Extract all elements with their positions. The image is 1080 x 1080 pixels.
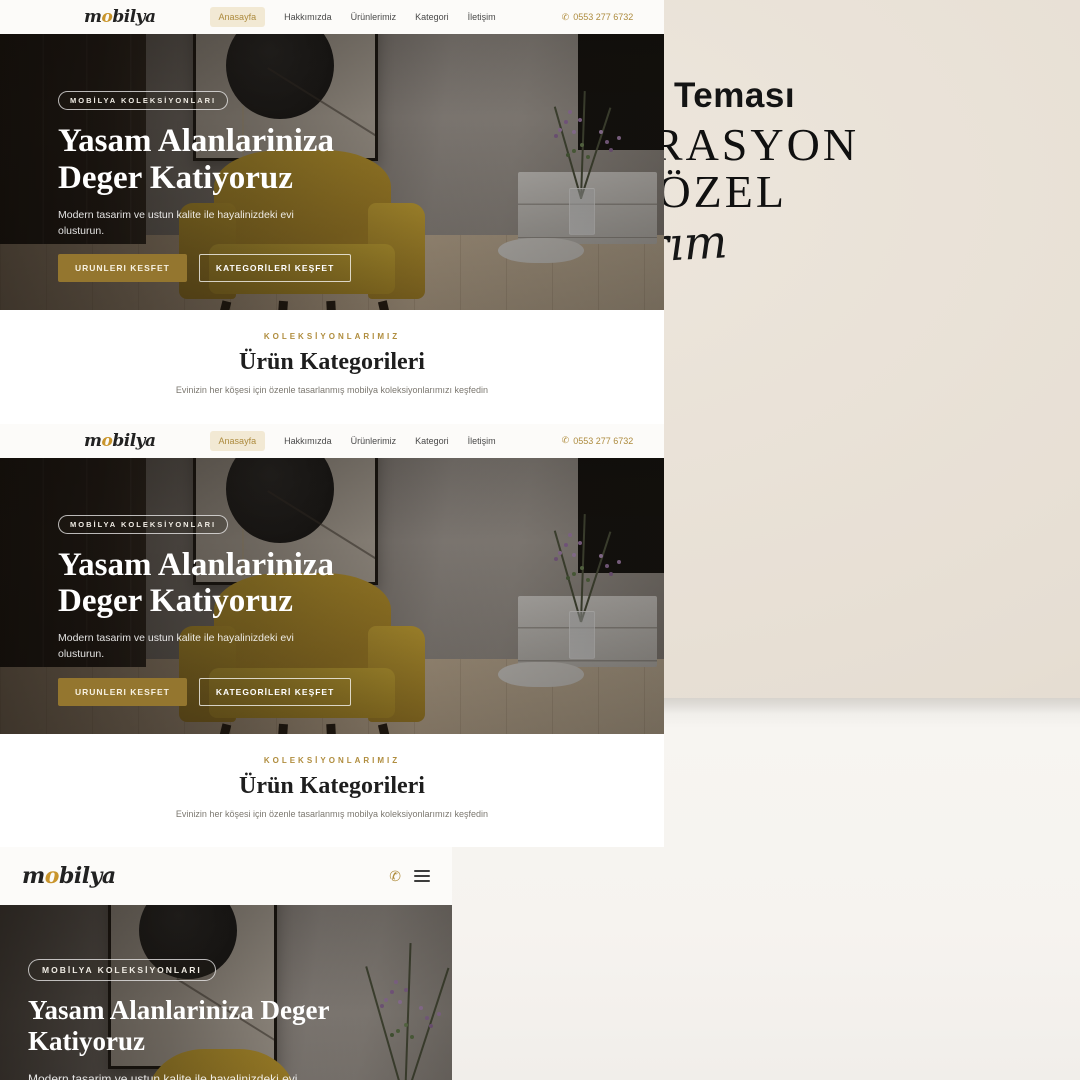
hero-buttons: URUNLERI KESFET KATEGORİLERİ KEŞFET bbox=[58, 678, 378, 706]
hero-section: MOBİLYA KOLEKSİYONLARI Yasam Alanlariniz… bbox=[0, 34, 664, 310]
collections-title: Ürün Kategorileri bbox=[0, 349, 664, 376]
site-logo[interactable]: mobilya bbox=[84, 431, 156, 451]
nav-item-anasayfa[interactable]: Anasayfa bbox=[210, 7, 266, 27]
hero-badge: MOBİLYA KOLEKSİYONLARI bbox=[58, 91, 228, 110]
collections-section: KOLEKSİYONLARIMIZ Ürün Kategorileri Evin… bbox=[0, 310, 664, 424]
hero-subtitle: Modern tasarim ve ustun kalite ile hayal… bbox=[58, 631, 328, 663]
website-tablet: mobilya ✆ bbox=[0, 847, 452, 1080]
site-navbar: mobilya Anasayfa Hakkımızda Ürünlerimiz … bbox=[0, 0, 664, 34]
hero-content: MOBİLYA KOLEKSİYONLARI Yasam Alanlariniz… bbox=[58, 90, 378, 282]
logo-part: m bbox=[22, 863, 45, 889]
explore-products-button[interactable]: URUNLERI KESFET bbox=[58, 678, 187, 706]
hero-subtitle: Modern tasarim ve ustun kalite ile hayal… bbox=[28, 1070, 328, 1080]
logo-part: bilya bbox=[59, 863, 116, 889]
logo-o-accent: o bbox=[102, 7, 113, 27]
hero-content: MOBİLYA KOLEKSİYONLARI Yasam Alanlariniz… bbox=[28, 959, 358, 1080]
hamburger-icon[interactable] bbox=[414, 870, 430, 882]
header-icons: ✆ bbox=[389, 868, 430, 885]
collections-section: KOLEKSİYONLARIMIZ Ürün Kategorileri Evin… bbox=[0, 734, 664, 848]
nav-item-hakkimizda[interactable]: Hakkımızda bbox=[284, 436, 332, 446]
nav-item-kategori[interactable]: Kategori bbox=[415, 12, 449, 22]
logo-o-accent: o bbox=[45, 863, 59, 889]
explore-categories-button[interactable]: KATEGORİLERİ KEŞFET bbox=[199, 678, 352, 706]
collections-eyebrow: KOLEKSİYONLARIMIZ bbox=[0, 756, 664, 765]
collections-title: Ürün Kategorileri bbox=[0, 773, 664, 800]
nav-item-urunlerimiz[interactable]: Ürünlerimiz bbox=[351, 12, 397, 22]
poster-canvas: ESC Mobilya Web Site Teması MOBILYA & DE… bbox=[0, 0, 1080, 1080]
phone-icon: ✆ bbox=[562, 435, 570, 446]
nav-item-urunlerimiz[interactable]: Ürünlerimiz bbox=[351, 436, 397, 446]
nav-item-iletisim[interactable]: İletişim bbox=[468, 436, 496, 446]
collections-eyebrow: KOLEKSİYONLARIMIZ bbox=[0, 332, 664, 341]
hero-title: Yasam Alanlariniza Deger Katiyoruz bbox=[58, 123, 378, 197]
logo-part: m bbox=[84, 431, 102, 451]
collections-subtitle: Evinizin her köşesi için özenle tasarlan… bbox=[167, 384, 497, 398]
phone-number: 0553 277 6732 bbox=[573, 436, 633, 446]
explore-categories-button[interactable]: KATEGORİLERİ KEŞFET bbox=[199, 254, 352, 282]
hero-buttons: URUNLERI KESFET KATEGORİLERİ KEŞFET bbox=[58, 254, 378, 282]
logo-part: bilya bbox=[112, 7, 155, 27]
hero-title: Yasam Alanlariniza Deger Katiyoruz bbox=[58, 547, 378, 621]
hero-subtitle: Modern tasarim ve ustun kalite ile hayal… bbox=[58, 208, 328, 240]
nav-item-kategori[interactable]: Kategori bbox=[415, 436, 449, 446]
phone-number: 0553 277 6732 bbox=[573, 12, 633, 22]
logo-part: m bbox=[84, 7, 102, 27]
site-logo[interactable]: mobilya bbox=[22, 863, 116, 889]
nav-item-anasayfa[interactable]: Anasayfa bbox=[210, 431, 266, 451]
phone-link[interactable]: ✆ 0553 277 6732 bbox=[562, 12, 634, 23]
nav-item-hakkimizda[interactable]: Hakkımızda bbox=[284, 12, 332, 22]
logo-o-accent: o bbox=[102, 431, 113, 451]
hero-title: Yasam Alanlariniza Deger Katiyoruz bbox=[28, 995, 358, 1058]
site-logo[interactable]: mobilya bbox=[84, 7, 156, 27]
nav-links: Anasayfa Hakkımızda Ürünlerimiz Kategori… bbox=[210, 7, 496, 27]
website-desktop: mobilya Anasayfa Hakkımızda Ürünlerimiz … bbox=[0, 424, 664, 848]
hero-section: MOBİLYA KOLEKSİYONLARI Yasam Alanlariniz… bbox=[0, 905, 452, 1080]
phone-link[interactable]: ✆ 0553 277 6732 bbox=[562, 435, 634, 446]
hero-badge: MOBİLYA KOLEKSİYONLARI bbox=[28, 959, 216, 981]
hero-content: MOBİLYA KOLEKSİYONLARI Yasam Alanlariniz… bbox=[58, 514, 378, 706]
explore-products-button[interactable]: URUNLERI KESFET bbox=[58, 254, 187, 282]
logo-part: bilya bbox=[112, 431, 155, 451]
site-navbar: mobilya ✆ bbox=[0, 847, 452, 905]
nav-item-iletisim[interactable]: İletişim bbox=[468, 12, 496, 22]
phone-icon[interactable]: ✆ bbox=[389, 868, 401, 885]
nav-links: Anasayfa Hakkımızda Ürünlerimiz Kategori… bbox=[210, 431, 496, 451]
website-desktop: mobilya Anasayfa Hakkımızda Ürünlerimiz … bbox=[0, 0, 664, 424]
hero-badge: MOBİLYA KOLEKSİYONLARI bbox=[58, 515, 228, 534]
hero-section: MOBİLYA KOLEKSİYONLARI Yasam Alanlariniz… bbox=[0, 458, 664, 734]
site-navbar: mobilya Anasayfa Hakkımızda Ürünlerimiz … bbox=[0, 424, 664, 458]
phone-icon: ✆ bbox=[562, 12, 570, 23]
collections-subtitle: Evinizin her köşesi için özenle tasarlan… bbox=[167, 808, 497, 822]
